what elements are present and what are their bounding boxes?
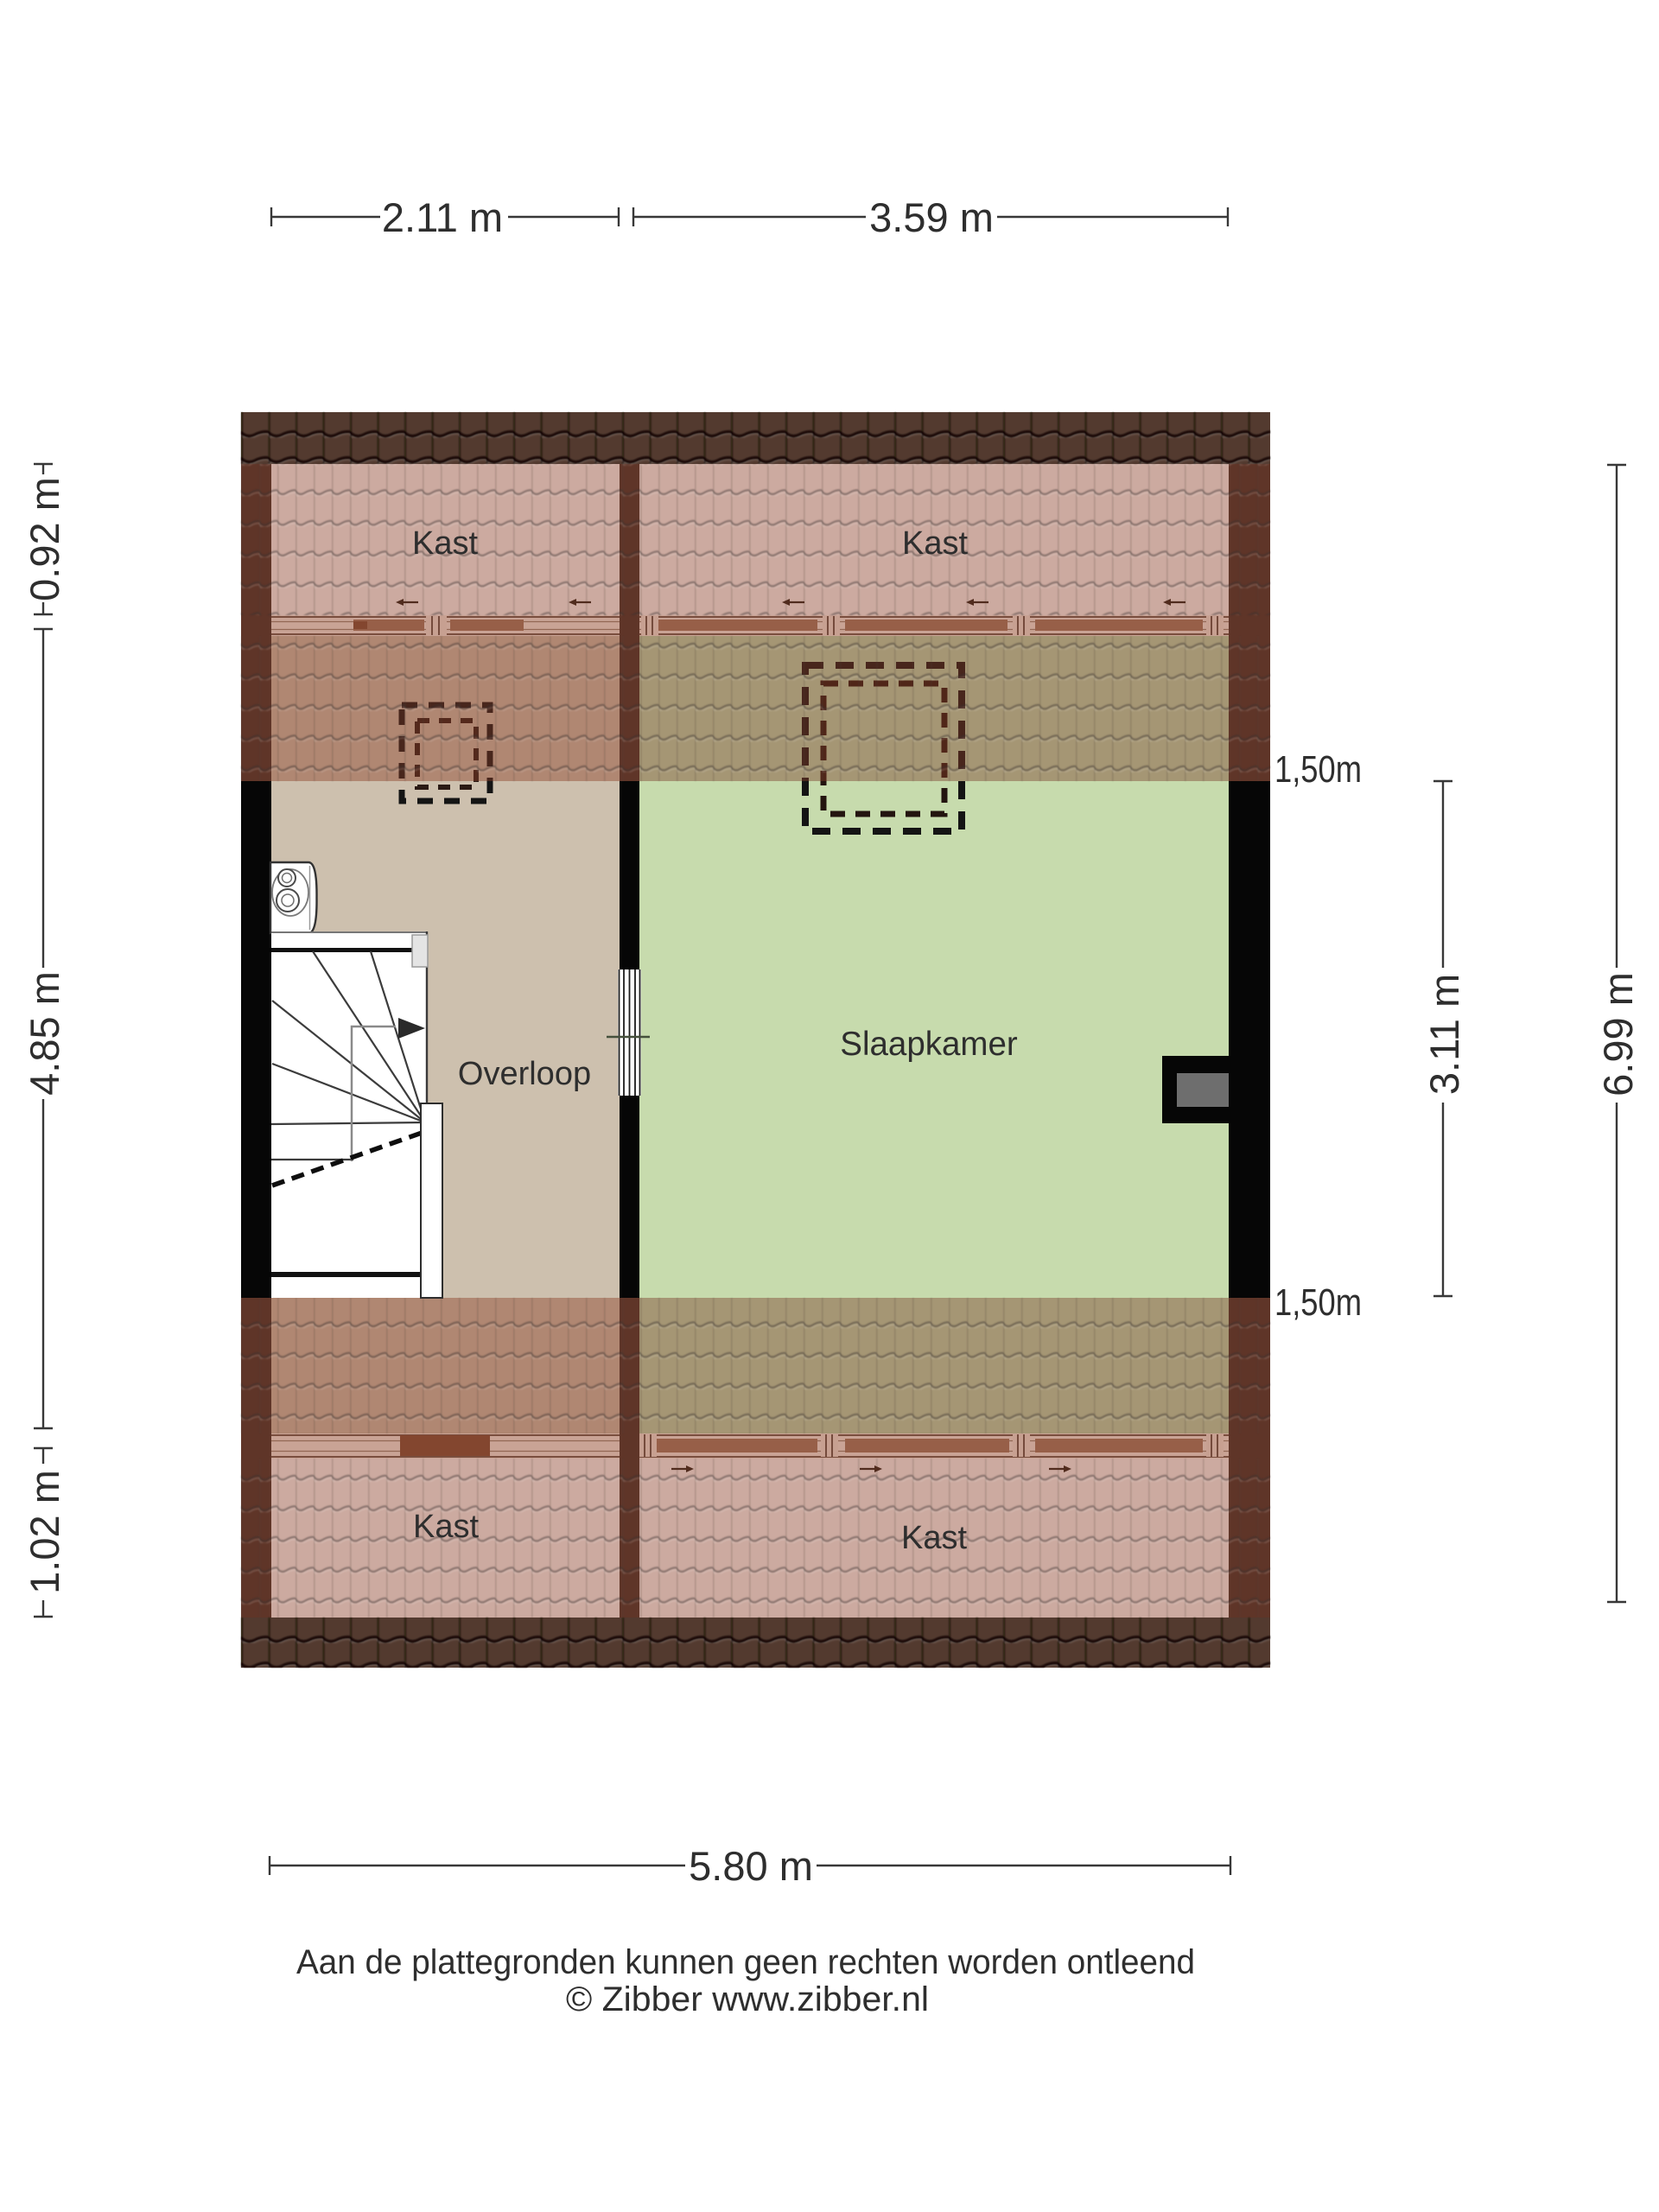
svg-text:© Zibber www.zibber.nl: © Zibber www.zibber.nl [566,1980,929,2018]
svg-text:Slaapkamer: Slaapkamer [840,1026,1018,1063]
svg-text:4.85 m: 4.85 m [22,971,67,1096]
svg-text:Kast: Kast [413,1509,479,1545]
svg-text:3.11 m: 3.11 m [1421,974,1467,1095]
svg-text:Overloop: Overloop [458,1056,591,1092]
svg-text:6.99 m: 6.99 m [1595,972,1641,1096]
svg-text:Kast: Kast [901,1520,967,1556]
svg-text:Aan de plattegronden kunnen ge: Aan de plattegronden kunnen geen rechten… [296,1943,1195,1981]
svg-text:5.80 m: 5.80 m [689,1843,813,1889]
svg-text:3.59 m: 3.59 m [869,194,994,240]
svg-text:1.02 m: 1.02 m [22,1470,67,1594]
svg-text:1,50m: 1,50m [1274,1281,1362,1324]
svg-text:1,50m: 1,50m [1274,748,1362,791]
svg-text:0.92 m: 0.92 m [22,477,67,601]
svg-text:Kast: Kast [902,525,968,562]
svg-text:Kast: Kast [412,525,478,562]
svg-text:2.11 m: 2.11 m [382,194,503,240]
